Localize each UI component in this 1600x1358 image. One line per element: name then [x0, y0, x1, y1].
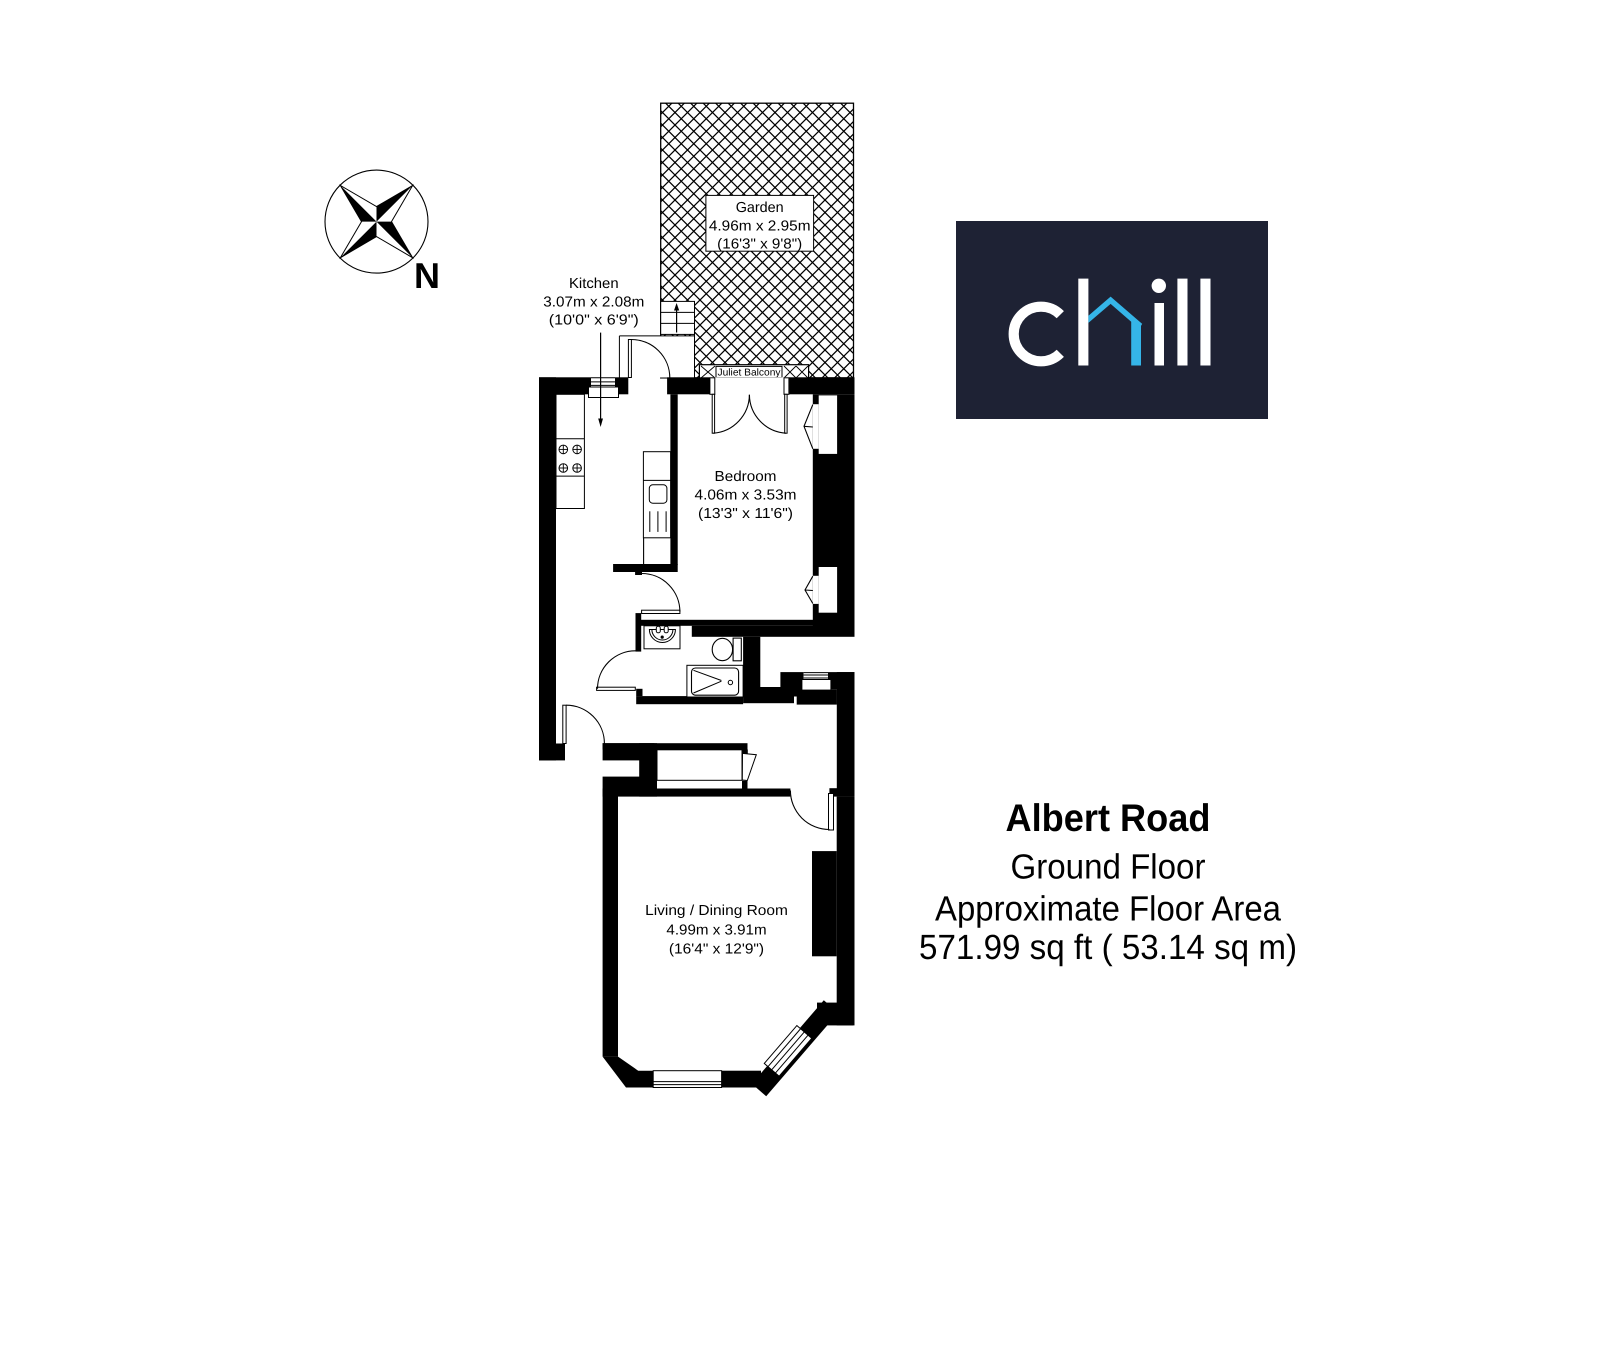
svg-text:4.96m x 2.95m: 4.96m x 2.95m [709, 218, 811, 234]
svg-text:Living / Dining Room: Living / Dining Room [645, 903, 788, 919]
svg-text:Kitchen: Kitchen [569, 276, 619, 292]
svg-text:Bedroom: Bedroom [715, 469, 777, 485]
svg-text:571.99 sq ft ( 53.14 sq m): 571.99 sq ft ( 53.14 sq m) [919, 928, 1297, 967]
svg-text:3.07m x 2.08m: 3.07m x 2.08m [543, 294, 644, 310]
svg-text:(16'4" x 12'9"): (16'4" x 12'9") [669, 942, 764, 958]
svg-text:4.06m x 3.53m: 4.06m x 3.53m [695, 488, 797, 504]
svg-text:4.99m x 3.91m: 4.99m x 3.91m [666, 922, 766, 938]
svg-text:(10'0" x 6'9"): (10'0" x 6'9") [549, 313, 639, 329]
svg-text:Ground Floor: Ground Floor [1011, 848, 1206, 887]
svg-text:N: N [414, 255, 440, 296]
svg-text:Albert Road: Albert Road [1006, 797, 1211, 840]
svg-text:Approximate Floor Area: Approximate Floor Area [935, 890, 1282, 929]
svg-text:Juliet Balcony: Juliet Balcony [718, 367, 781, 378]
svg-text:(16'3" x 9'8"): (16'3" x 9'8") [717, 237, 802, 253]
svg-text:Garden: Garden [736, 200, 784, 216]
svg-text:(13'3" x 11'6"): (13'3" x 11'6") [698, 506, 793, 522]
